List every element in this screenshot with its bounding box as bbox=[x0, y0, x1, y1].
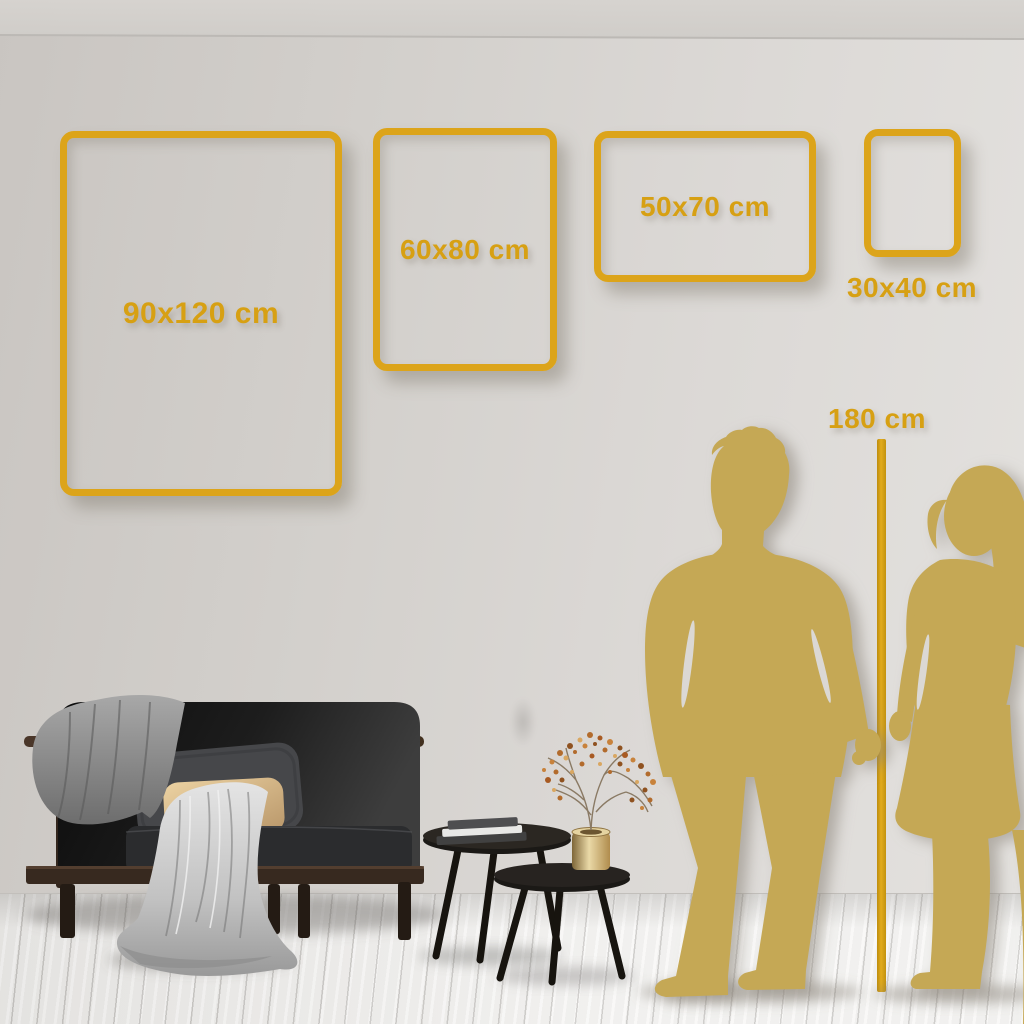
woman-leg bbox=[930, 832, 990, 972]
man-leg-left bbox=[670, 772, 746, 976]
woman-trailing-leg bbox=[1012, 830, 1024, 1024]
woman-foot bbox=[911, 972, 982, 989]
man-silhouette bbox=[645, 426, 881, 997]
woman-skirt bbox=[895, 700, 1020, 841]
man-head bbox=[705, 426, 789, 559]
woman-head bbox=[944, 476, 1004, 556]
man-leg-right bbox=[754, 772, 836, 970]
woman-silhouette bbox=[889, 465, 1024, 1024]
man-foot-right bbox=[738, 970, 806, 990]
couple-silhouettes bbox=[0, 0, 1024, 1024]
man-foot-left bbox=[655, 976, 728, 997]
poster-size-guide-image: 90x120 cm 60x80 cm 50x70 cm 30x40 cm 180… bbox=[0, 0, 1024, 1024]
woman-hand bbox=[889, 711, 911, 741]
